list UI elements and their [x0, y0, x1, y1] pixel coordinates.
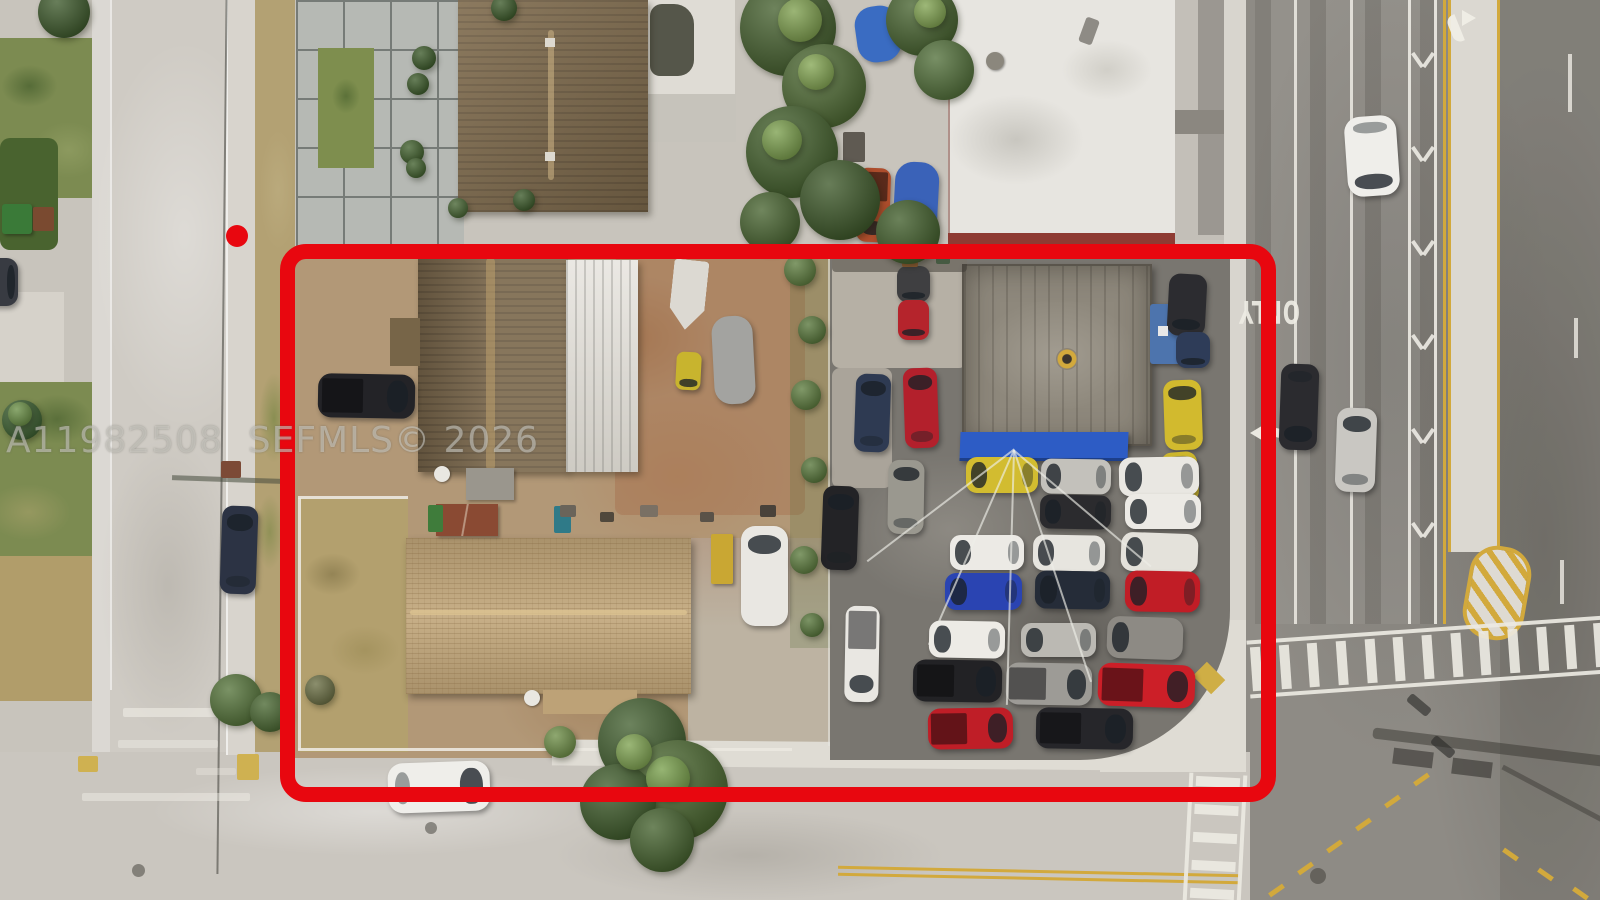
lane-line	[1350, 0, 1353, 624]
rear-window	[226, 575, 249, 587]
crosswalk-bar	[1194, 804, 1238, 816]
roof-vent	[545, 38, 555, 47]
crosswalk-bar	[1450, 633, 1463, 678]
rear-window	[1342, 474, 1368, 486]
curb-line	[110, 0, 112, 690]
boundary-marker-dot	[226, 225, 248, 247]
roof-ac-unit	[986, 52, 1004, 70]
crosswalk-bar	[1479, 631, 1492, 676]
vehicle	[0, 258, 18, 306]
windshield	[1284, 425, 1312, 442]
faded-road-marking	[118, 740, 218, 748]
buffer-line	[1408, 0, 1411, 624]
crosswalk-bar	[1593, 623, 1600, 668]
faded-road-marking	[123, 708, 218, 717]
crosswalk-bar	[1193, 832, 1237, 844]
manhole-cover	[425, 822, 437, 834]
vehicle	[219, 505, 258, 594]
crosswalk-bar	[1364, 639, 1377, 684]
tree-canopy	[778, 0, 822, 42]
rear-window	[1288, 370, 1313, 382]
tree-canopy	[406, 158, 426, 178]
tree-canopy	[800, 160, 880, 240]
vehicle	[1279, 363, 1320, 450]
tree-canopy	[448, 198, 468, 218]
roof-patch	[650, 4, 694, 76]
windshield	[1342, 415, 1371, 432]
commercial-building-roof	[948, 0, 1175, 247]
windshield	[227, 513, 254, 531]
tree-canopy	[412, 46, 436, 70]
crosswalk-bar	[1191, 860, 1235, 872]
alley-wall	[1175, 110, 1225, 134]
tree-canopy	[407, 73, 429, 95]
lane-dash	[1574, 318, 1578, 358]
manhole-cover	[1310, 868, 1326, 884]
lane-dash	[1568, 54, 1572, 112]
northbound-lanes	[1500, 0, 1600, 900]
faded-road-marking	[196, 768, 236, 775]
faded-road-marking	[82, 793, 250, 801]
faded-road-marking	[237, 754, 259, 780]
brown-bin	[33, 207, 54, 231]
crosswalk-bar	[1536, 627, 1549, 672]
rear-window	[1353, 121, 1387, 134]
yellow-line	[1443, 0, 1446, 624]
manhole-cover	[132, 864, 145, 877]
crosswalk-bar	[1393, 637, 1406, 682]
green-dumpster	[2, 204, 32, 234]
yard-debris	[843, 132, 865, 162]
crosswalk-bar	[1421, 635, 1434, 680]
crosswalk-bar	[1336, 641, 1349, 686]
buffer-line	[1434, 0, 1437, 624]
patio-grass-tiles	[318, 48, 374, 168]
vehicle	[1343, 114, 1400, 197]
tree-canopy	[740, 192, 800, 252]
sidewalk	[226, 0, 255, 755]
right-turn-arrow-icon	[1462, 10, 1476, 26]
crosswalk-bar	[1307, 643, 1320, 688]
tree-canopy	[798, 54, 834, 90]
tree-canopy	[630, 808, 694, 872]
property-boundary-outline	[280, 244, 1276, 802]
lane-dash	[1560, 560, 1564, 604]
crosswalk-bar	[1564, 625, 1577, 670]
concrete-pad	[0, 292, 64, 390]
windshield	[1355, 172, 1393, 190]
tree-canopy	[762, 120, 802, 160]
crosswalk-bar	[1278, 645, 1291, 690]
tree-canopy	[513, 189, 535, 211]
roof-vent	[545, 152, 555, 161]
crosswalk-bar	[1190, 888, 1234, 900]
utility-box	[221, 461, 241, 478]
vehicle	[1335, 407, 1378, 492]
painted-median	[1448, 0, 1500, 552]
dry-grass	[0, 556, 95, 701]
tree-canopy	[914, 40, 974, 100]
faded-road-marking	[78, 756, 98, 772]
mls-watermark: A11982508 SEFMLS© 2026	[6, 420, 539, 461]
aerial-photo: ONLY A11982508	[0, 0, 1600, 900]
crosswalk-bar	[1507, 629, 1520, 674]
windshield	[7, 265, 15, 300]
tree-canopy	[38, 0, 90, 38]
